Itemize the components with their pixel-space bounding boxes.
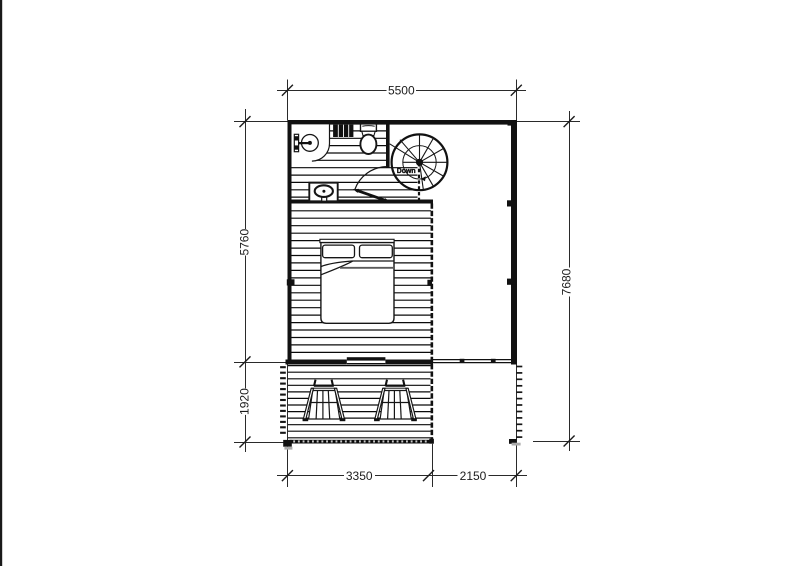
svg-text:2150: 2150	[460, 469, 487, 483]
svg-text:Down: Down	[397, 168, 416, 175]
svg-text:5500: 5500	[388, 84, 415, 98]
svg-text:5760: 5760	[238, 229, 252, 256]
svg-text:3350: 3350	[346, 469, 373, 483]
svg-text:1920: 1920	[238, 388, 252, 415]
svg-text:7680: 7680	[559, 268, 573, 295]
